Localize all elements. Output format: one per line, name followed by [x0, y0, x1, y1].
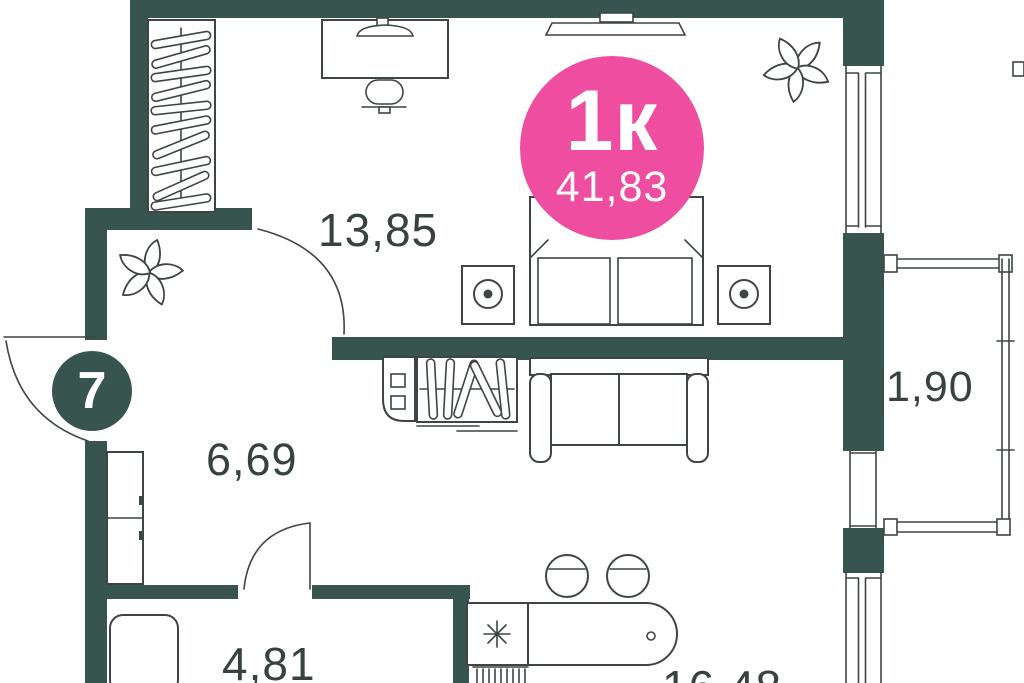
apartment-total-area: 41,83: [520, 166, 704, 209]
wall-top: [130, 0, 884, 18]
dresser-icon: [383, 357, 415, 421]
open-wardrobe-icon: [417, 357, 517, 431]
wall-bathroom-right: [312, 585, 470, 599]
bathroom-door: [244, 523, 310, 589]
bathroom-area-label: 4,81: [222, 641, 316, 683]
nightstand-lamp-icon: [462, 266, 514, 324]
sofa-icon: [530, 358, 708, 462]
floor-plan-drawing: [0, 0, 1024, 683]
unit-number: 7: [78, 361, 107, 421]
dining-chair-icon: [546, 555, 588, 597]
wall-left-lower: [85, 441, 107, 683]
wardrobe-icon: [148, 20, 215, 212]
kitchen-living-area-label: 16,48: [662, 664, 782, 683]
balcony-railing: [884, 62, 1024, 535]
bedroom-area-label: 13,85: [318, 207, 438, 253]
floor-plan: 13,85 6,69 4,81 16,48 1,90 1к 41,83 7: [0, 0, 1024, 683]
dishwasher-icon: [473, 667, 528, 683]
apartment-type-badge: 1к 41,83: [520, 56, 704, 240]
bathtub-icon: [110, 615, 178, 683]
nightstand-lamp-icon: [718, 266, 770, 324]
bedroom-window: [843, 66, 884, 233]
wall-right-top: [843, 0, 884, 66]
balcony-door-unit: [850, 451, 876, 528]
apartment-type-label: 1к: [520, 82, 704, 161]
kitchen-table-icon: [528, 603, 677, 665]
desk-icon: [322, 18, 448, 113]
wall-right-mid: [843, 233, 884, 451]
balcony-area-label: 1,90: [886, 366, 974, 409]
wall-left-mid: [85, 208, 107, 340]
hall-area-label: 6,69: [206, 437, 298, 482]
hall-cabinet-icon: [107, 452, 143, 584]
wall-left-upper: [130, 0, 148, 212]
dining-chair-icon: [607, 555, 649, 597]
kitchen-window: [843, 573, 884, 683]
wall-bathroom-left: [88, 585, 238, 599]
plant-icon: [114, 237, 189, 312]
wall-right-low: [843, 528, 884, 573]
cooktop-icon: [467, 603, 528, 665]
unit-number-badge: 7: [52, 351, 132, 431]
plant-icon: [758, 29, 839, 111]
